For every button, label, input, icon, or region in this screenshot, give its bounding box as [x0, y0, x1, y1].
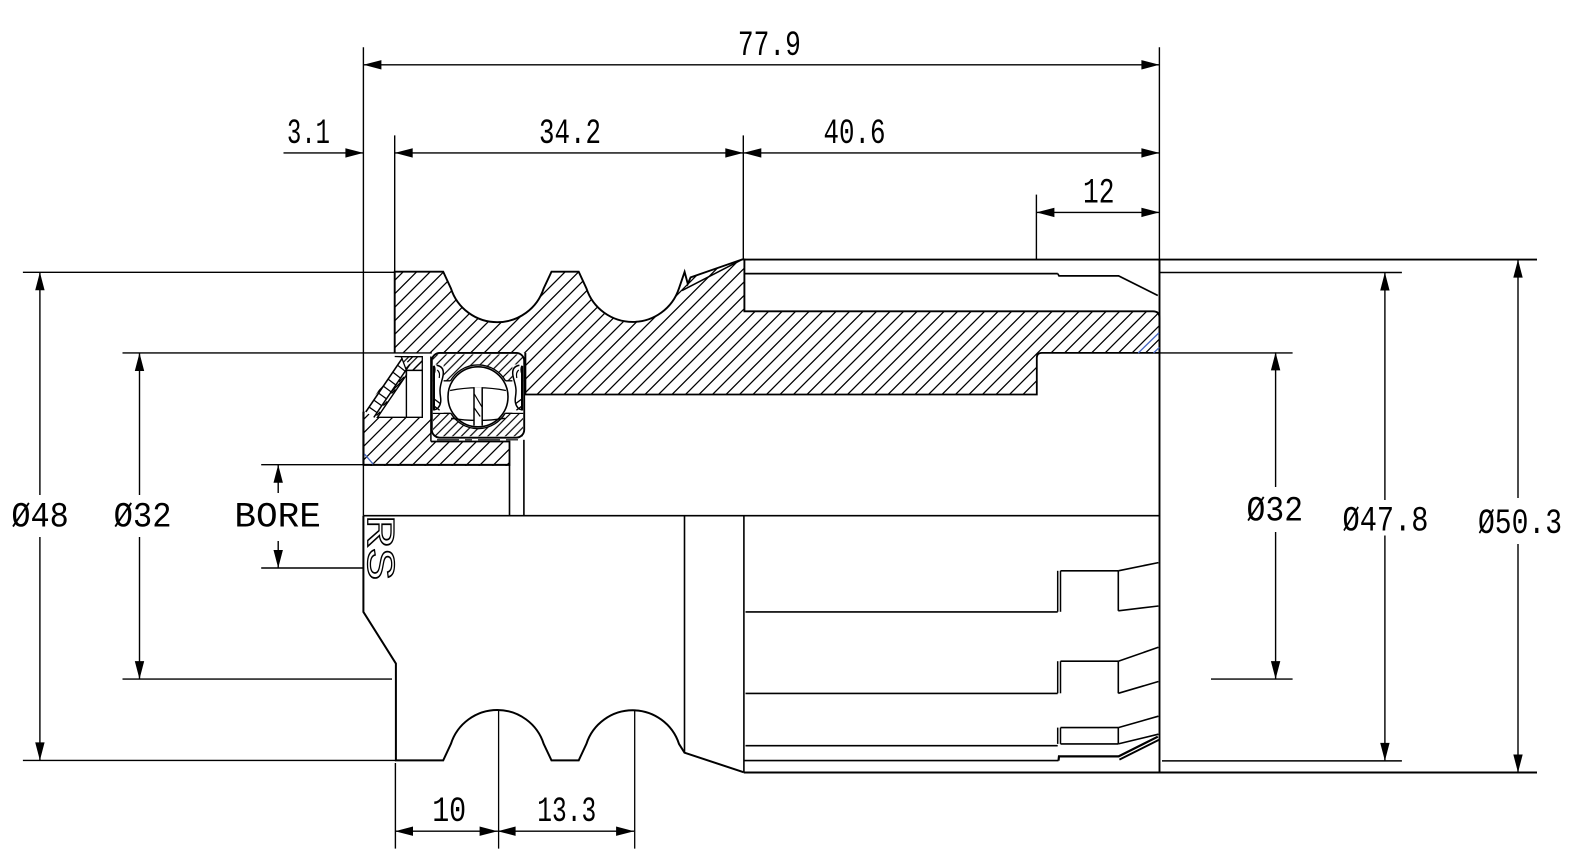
svg-text:Ø50.3: Ø50.3	[1478, 504, 1562, 544]
svg-text:BORE: BORE	[234, 498, 321, 538]
svg-text:10: 10	[432, 792, 466, 832]
svg-text:13.3: 13.3	[537, 792, 596, 832]
svg-text:Ø48: Ø48	[11, 498, 69, 538]
svg-text:Ø32: Ø32	[114, 498, 172, 538]
svg-text:12: 12	[1083, 174, 1115, 214]
svg-text:RS: RS	[355, 515, 400, 581]
svg-text:77.9: 77.9	[738, 26, 801, 66]
svg-text:Ø47.8: Ø47.8	[1343, 502, 1429, 542]
svg-text:Ø32: Ø32	[1247, 492, 1304, 532]
svg-text:34.2: 34.2	[539, 114, 601, 154]
svg-text:3.1: 3.1	[287, 114, 330, 154]
svg-text:40.6: 40.6	[824, 114, 886, 154]
